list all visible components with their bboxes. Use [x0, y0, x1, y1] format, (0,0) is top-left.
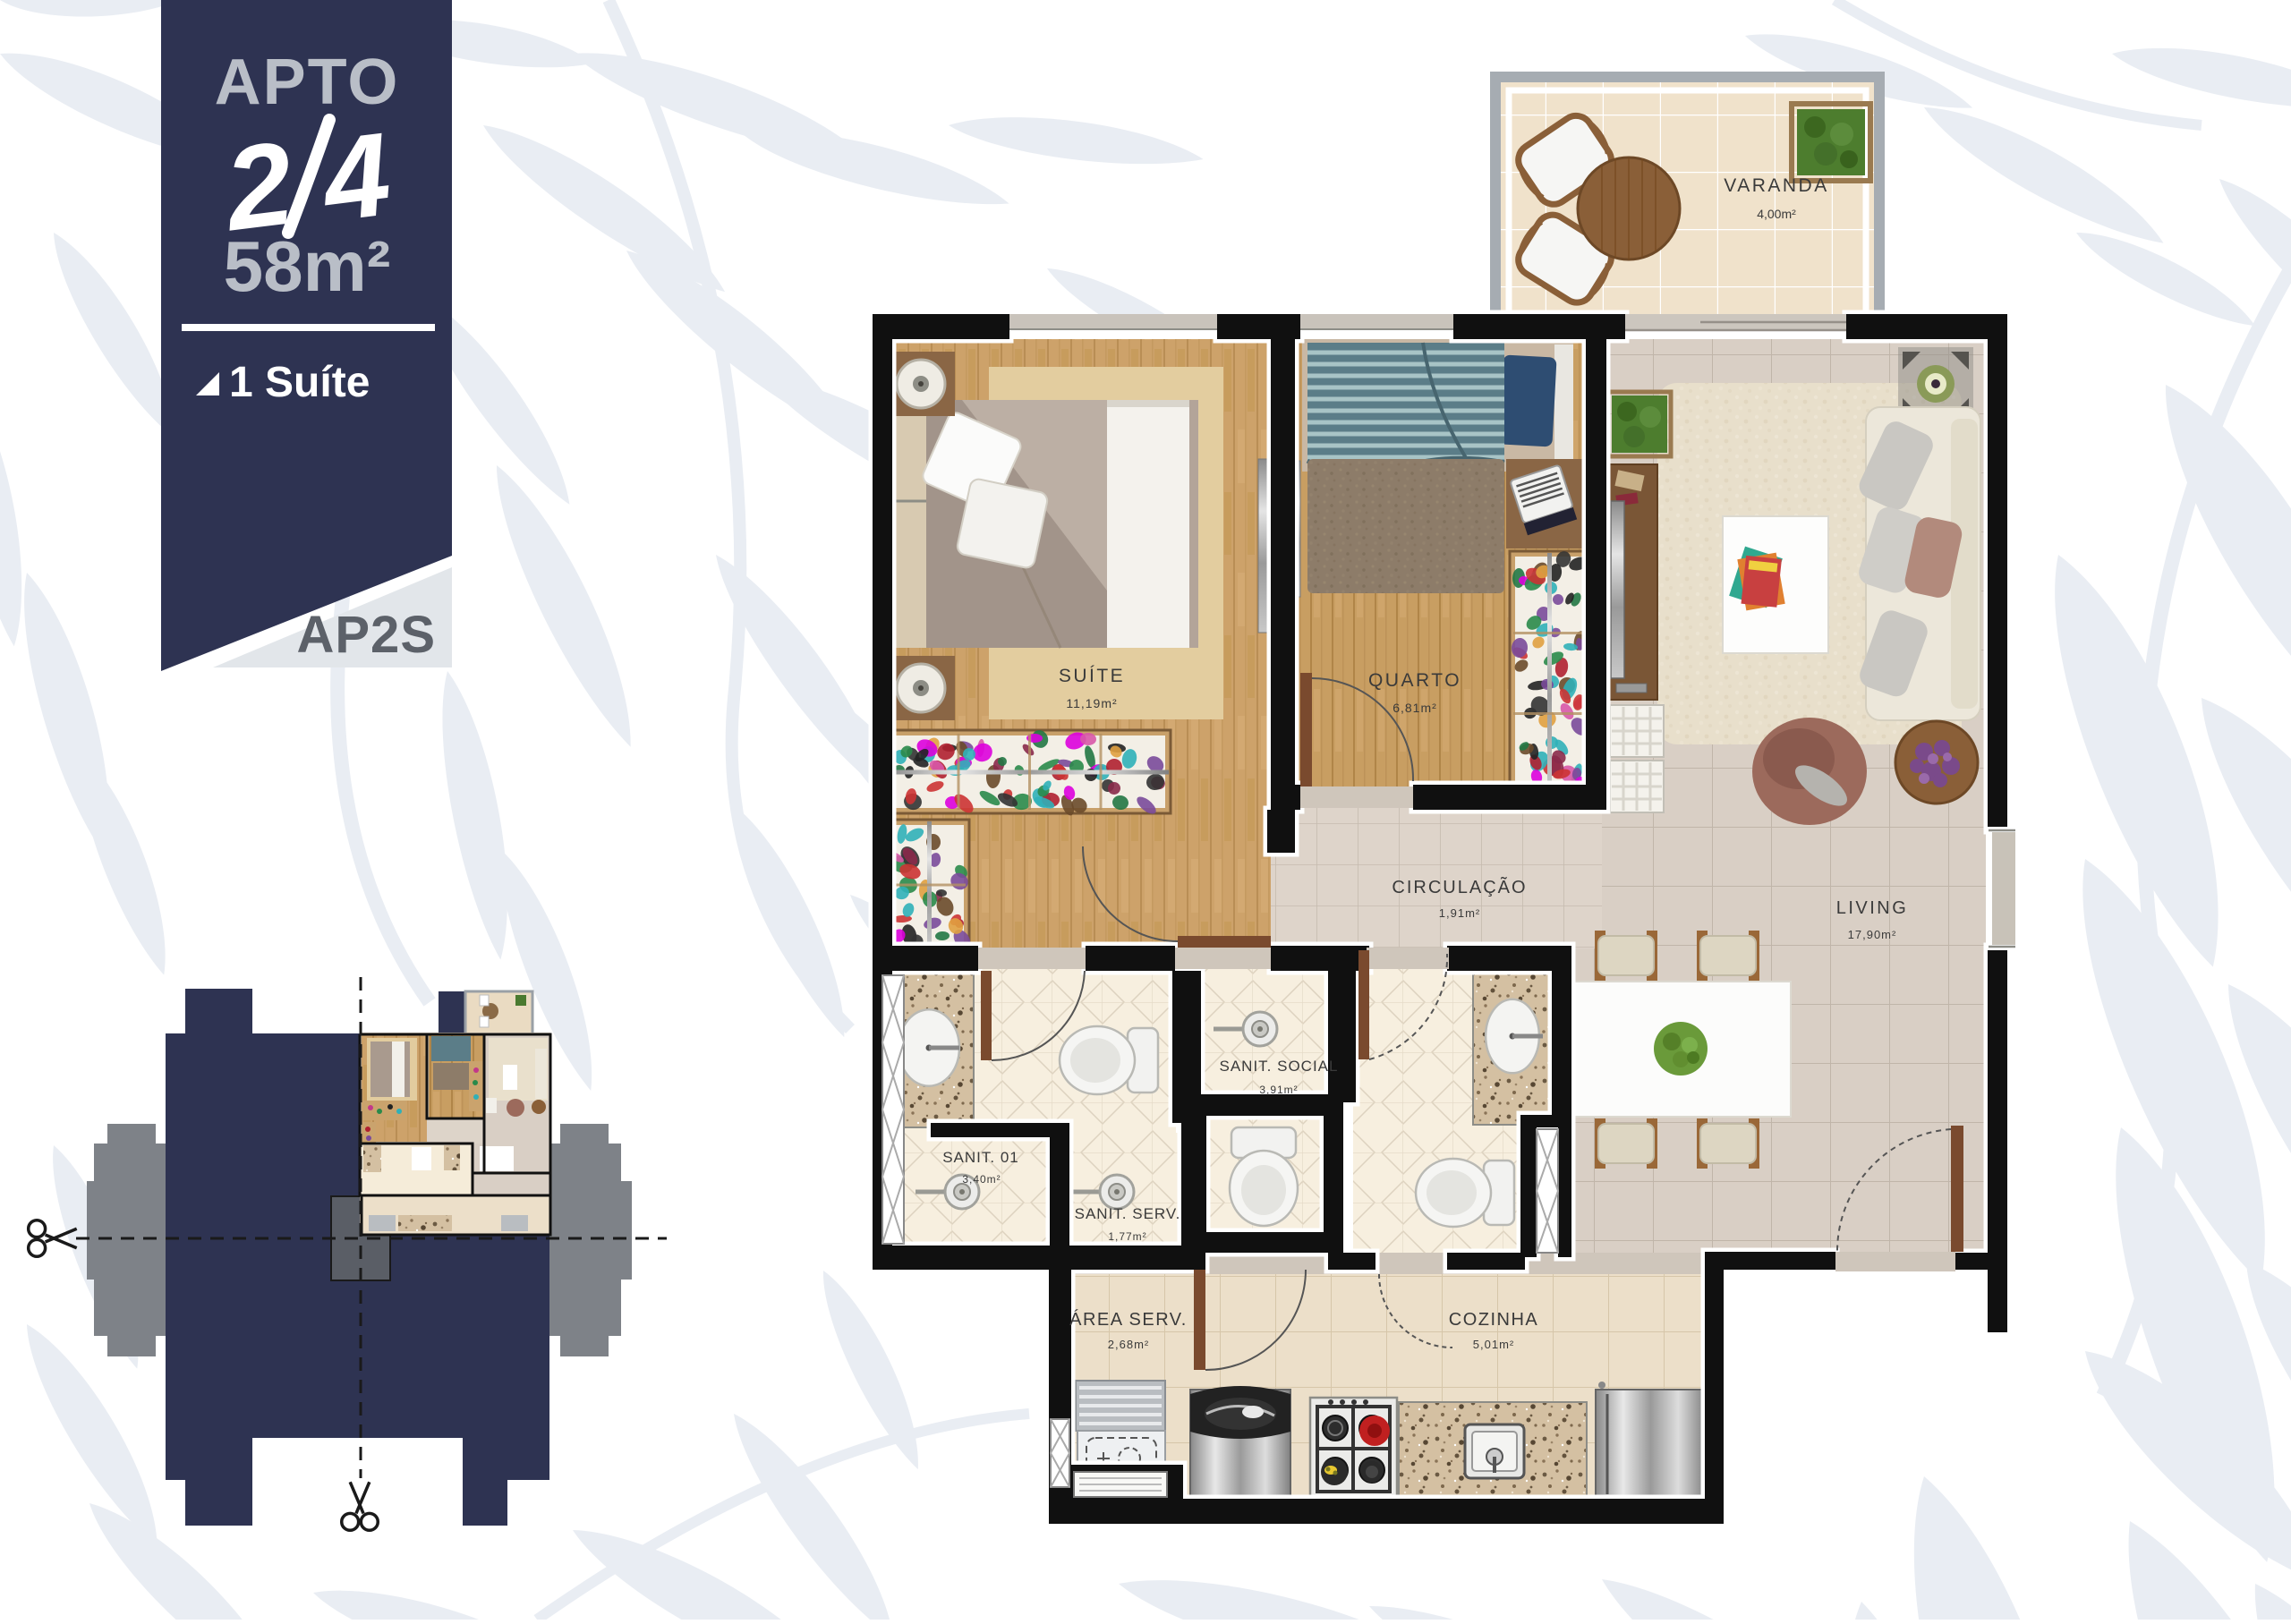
svg-text:COZINHA: COZINHA — [1449, 1310, 1539, 1330]
svg-text:58m²: 58m² — [224, 226, 391, 306]
svg-text:3,91m²: 3,91m² — [1259, 1084, 1298, 1096]
svg-text:SANIT. SOCIAL: SANIT. SOCIAL — [1220, 1058, 1339, 1075]
svg-text:11,19m²: 11,19m² — [1066, 696, 1117, 710]
svg-text:APTO: APTO — [215, 47, 400, 118]
svg-text:4,00m²: 4,00m² — [1757, 207, 1796, 221]
svg-text:3,40m²: 3,40m² — [962, 1173, 1001, 1186]
svg-text:LIVING: LIVING — [1836, 898, 1909, 918]
svg-text:QUARTO: QUARTO — [1368, 670, 1461, 691]
svg-text:CIRCULAÇÃO: CIRCULAÇÃO — [1392, 876, 1527, 897]
svg-text:1 Suíte: 1 Suíte — [229, 359, 370, 406]
svg-text:5,01m²: 5,01m² — [1473, 1338, 1514, 1351]
svg-text:6,81m²: 6,81m² — [1392, 701, 1437, 715]
svg-text:AP2S: AP2S — [296, 606, 436, 664]
svg-text:1,91m²: 1,91m² — [1439, 906, 1480, 920]
svg-text:SANIT. 01: SANIT. 01 — [942, 1149, 1019, 1166]
svg-text:VARANDA: VARANDA — [1724, 175, 1828, 196]
svg-text:SANIT. SERV.: SANIT. SERV. — [1075, 1205, 1181, 1222]
svg-text:17,90m²: 17,90m² — [1848, 928, 1897, 941]
svg-text:2,68m²: 2,68m² — [1108, 1338, 1149, 1351]
svg-text:SUÍTE: SUÍTE — [1059, 666, 1125, 686]
svg-text:ÁREA SERV.: ÁREA SERV. — [1069, 1309, 1188, 1330]
svg-text:1,77m²: 1,77m² — [1108, 1230, 1146, 1243]
